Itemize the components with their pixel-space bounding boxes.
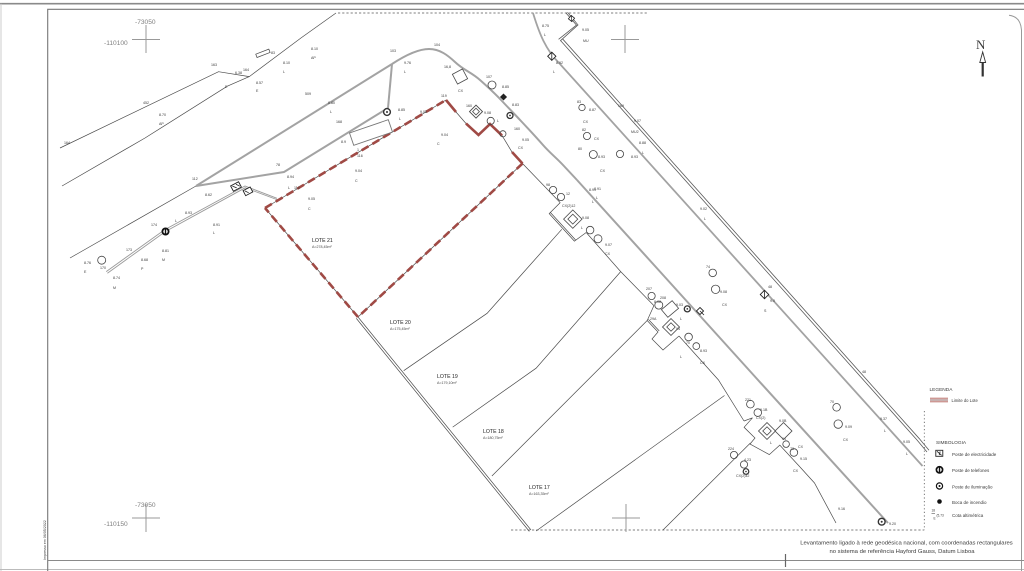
svg-text:M: M xyxy=(113,286,116,290)
svg-text:8.74: 8.74 xyxy=(113,276,120,280)
svg-text:164: 164 xyxy=(243,68,249,72)
svg-text:L: L xyxy=(175,219,177,223)
svg-text:SIMBOLOGIA: SIMBOLOGIA xyxy=(936,440,967,446)
svg-text:9.07: 9.07 xyxy=(605,243,612,247)
svg-text:163: 163 xyxy=(211,63,217,67)
svg-text:E: E xyxy=(934,517,936,521)
svg-text:8.87: 8.87 xyxy=(589,108,596,112)
svg-text:9.04: 9.04 xyxy=(441,133,448,137)
svg-text:-110150: -110150 xyxy=(104,521,128,528)
svg-text:L: L xyxy=(497,119,499,123)
svg-text:CX: CX xyxy=(700,361,706,365)
svg-text:L: L xyxy=(642,151,644,155)
svg-text:104: 104 xyxy=(434,43,440,47)
svg-text:160: 160 xyxy=(514,127,520,131)
svg-text:L: L xyxy=(544,33,546,37)
svg-text:9.07: 9.07 xyxy=(634,119,641,123)
svg-text:9.08: 9.08 xyxy=(582,216,589,220)
svg-text:119: 119 xyxy=(441,94,447,98)
svg-text:8.10: 8.10 xyxy=(311,47,318,51)
svg-text:L: L xyxy=(770,441,772,445)
svg-text:48: 48 xyxy=(768,285,772,289)
svg-text:9.09: 9.09 xyxy=(845,425,852,429)
svg-text:CX: CX xyxy=(600,169,606,173)
svg-text:no sistema de referência Hayfo: no sistema de referência Hayford Gauss, … xyxy=(829,549,975,555)
svg-text:AP: AP xyxy=(311,56,316,60)
svg-text:73: 73 xyxy=(790,447,794,451)
svg-text:94: 94 xyxy=(782,437,786,441)
svg-text:A=163,35m²: A=163,35m² xyxy=(529,492,549,496)
svg-text:Levantamento ligado à rede geo: Levantamento ligado à rede geodésica nac… xyxy=(800,541,1013,547)
svg-text:8.81: 8.81 xyxy=(162,249,169,253)
svg-text:8.62: 8.62 xyxy=(205,193,212,197)
svg-text:9.02: 9.02 xyxy=(700,207,707,211)
svg-text:94: 94 xyxy=(676,327,680,331)
svg-text:164: 164 xyxy=(64,141,70,145)
svg-text:224: 224 xyxy=(728,447,734,451)
svg-text:CX: CX xyxy=(793,469,799,473)
svg-text:174: 174 xyxy=(151,223,157,227)
svg-text:CX: CX xyxy=(583,120,589,124)
svg-text:103: 103 xyxy=(390,49,396,53)
svg-text:83: 83 xyxy=(271,51,275,55)
svg-text:8.93: 8.93 xyxy=(631,155,638,159)
svg-text:107: 107 xyxy=(486,75,492,79)
svg-text:Boca de incendio: Boca de incendio xyxy=(952,500,987,505)
svg-text:8.68: 8.68 xyxy=(141,258,148,262)
svg-text:A=179,10m²: A=179,10m² xyxy=(437,381,457,385)
svg-text:4.23: 4.23 xyxy=(744,458,751,462)
svg-text:9.05: 9.05 xyxy=(420,110,427,114)
svg-text:80: 80 xyxy=(578,147,582,151)
svg-text:160: 160 xyxy=(466,104,472,108)
svg-text:8.92: 8.92 xyxy=(556,61,563,65)
svg-text:9.1B: 9.1B xyxy=(760,408,768,412)
svg-text:CX: CX xyxy=(518,146,524,150)
svg-text:L: L xyxy=(906,452,908,456)
svg-text:-73050: -73050 xyxy=(135,502,156,509)
svg-text:12: 12 xyxy=(566,192,570,196)
svg-text:L: L xyxy=(704,217,706,221)
svg-text:L: L xyxy=(680,355,682,359)
svg-text:L: L xyxy=(404,70,406,74)
svg-text:L: L xyxy=(283,70,285,74)
svg-text:CX(2)42: CX(2)42 xyxy=(736,474,749,478)
svg-text:170: 170 xyxy=(100,266,106,270)
svg-text:A=175,45m²: A=175,45m² xyxy=(390,327,410,331)
svg-text:8.93: 8.93 xyxy=(185,211,192,215)
svg-text:8.94: 8.94 xyxy=(287,175,294,179)
svg-text:70: 70 xyxy=(830,400,834,404)
svg-text:9.0B: 9.0B xyxy=(779,419,787,423)
svg-text:9.76: 9.76 xyxy=(404,61,411,65)
svg-text:74: 74 xyxy=(706,265,710,269)
svg-text:1: 1 xyxy=(357,148,359,152)
svg-text:LOTE 20: LOTE 20 xyxy=(390,320,411,326)
svg-text:MU2: MU2 xyxy=(631,130,639,134)
svg-text:CX: CX xyxy=(798,445,804,449)
svg-text:LOTE 18: LOTE 18 xyxy=(483,429,504,435)
svg-text:8.57: 8.57 xyxy=(256,81,263,85)
svg-text:112: 112 xyxy=(192,177,198,181)
svg-text:M: M xyxy=(162,258,165,262)
svg-text:8.70: 8.70 xyxy=(159,113,166,117)
svg-text:173: 173 xyxy=(126,248,132,252)
svg-text:9.0: 9.0 xyxy=(770,299,775,303)
svg-text:(5,73: (5,73 xyxy=(937,514,944,518)
svg-text:8.9: 8.9 xyxy=(341,140,346,144)
svg-text:9.08: 9.08 xyxy=(720,290,727,294)
svg-text:-73050: -73050 xyxy=(135,19,156,26)
svg-text:8.93: 8.93 xyxy=(598,155,605,159)
svg-text:L: L xyxy=(581,226,583,230)
svg-text:-110100: -110100 xyxy=(104,40,128,47)
svg-text:9.15: 9.15 xyxy=(800,457,807,461)
svg-text:CX: CX xyxy=(843,438,849,442)
svg-text:82: 82 xyxy=(582,128,586,132)
svg-text:CX: CX xyxy=(722,303,728,307)
svg-text:70: 70 xyxy=(686,341,690,345)
svg-text:169: 169 xyxy=(618,104,624,108)
svg-text:9.03: 9.03 xyxy=(676,303,683,307)
svg-text:207: 207 xyxy=(646,287,652,291)
svg-text:16,8: 16,8 xyxy=(444,65,451,69)
svg-text:AP: AP xyxy=(159,122,164,126)
svg-text:9.05: 9.05 xyxy=(522,138,529,142)
svg-text:221: 221 xyxy=(745,398,751,402)
svg-text:8.93: 8.93 xyxy=(700,349,707,353)
svg-text:8.08: 8.08 xyxy=(654,300,661,304)
svg-text:9.05: 9.05 xyxy=(903,440,910,444)
svg-text:A=180,75m²: A=180,75m² xyxy=(483,436,503,440)
svg-text:L: L xyxy=(213,231,215,235)
svg-text:9.08: 9.08 xyxy=(484,111,491,115)
svg-text:A=278,45m²: A=278,45m² xyxy=(312,245,332,249)
svg-text:8.91: 8.91 xyxy=(589,188,596,192)
svg-text:L: L xyxy=(399,117,401,121)
svg-text:8.75: 8.75 xyxy=(542,24,549,28)
svg-text:L: L xyxy=(288,186,290,190)
svg-text:8.80: 8.80 xyxy=(328,101,335,105)
svg-text:168: 168 xyxy=(336,120,342,124)
svg-text:115: 115 xyxy=(294,186,300,190)
svg-text:MU: MU xyxy=(583,39,589,43)
svg-text:6.38: 6.38 xyxy=(235,71,242,75)
svg-text:9.05: 9.05 xyxy=(582,28,589,32)
svg-text:LOTE 19: LOTE 19 xyxy=(437,374,458,380)
svg-text:N: N xyxy=(976,37,986,52)
svg-text:CX: CX xyxy=(605,252,611,256)
svg-text:CX(2)12: CX(2)12 xyxy=(562,204,575,208)
svg-text:48: 48 xyxy=(862,370,866,374)
svg-text:8.85: 8.85 xyxy=(502,85,509,89)
svg-text:Cota altimétrica: Cota altimétrica xyxy=(952,513,984,518)
svg-text:Poste de telefones: Poste de telefones xyxy=(952,468,990,473)
svg-text:L: L xyxy=(596,196,598,200)
svg-text:C: C xyxy=(437,142,440,146)
svg-text:18: 18 xyxy=(932,509,936,513)
svg-text:LEGENDA: LEGENDA xyxy=(930,387,954,393)
svg-text:83: 83 xyxy=(577,100,581,104)
svg-text:9.05: 9.05 xyxy=(308,197,315,201)
svg-text:8.91: 8.91 xyxy=(213,223,220,227)
svg-text:Poste de electricidade: Poste de electricidade xyxy=(952,452,997,457)
svg-text:98: 98 xyxy=(546,183,550,187)
svg-text:LOTE 17: LOTE 17 xyxy=(529,485,550,491)
svg-text:Limite do Lote: Limite do Lote xyxy=(952,398,979,403)
svg-text:LOTE 21: LOTE 21 xyxy=(312,238,333,244)
svg-text:L: L xyxy=(884,429,886,433)
svg-text:116: 116 xyxy=(357,154,363,158)
svg-text:9.20: 9.20 xyxy=(889,522,896,526)
svg-text:8.88: 8.88 xyxy=(639,141,646,145)
svg-text:8.85: 8.85 xyxy=(398,108,405,112)
svg-text:C: C xyxy=(355,179,358,183)
svg-text:9.37: 9.37 xyxy=(880,417,887,421)
svg-text:L: L xyxy=(592,200,594,204)
svg-text:29A: 29A xyxy=(650,317,657,321)
svg-text:CX: CX xyxy=(458,89,464,93)
svg-text:8.76: 8.76 xyxy=(84,261,91,265)
svg-text:Poste de iluminação: Poste de iluminação xyxy=(952,484,993,489)
svg-text:L: L xyxy=(553,70,555,74)
svg-text:L: L xyxy=(330,110,332,114)
svg-text:CX(2): CX(2) xyxy=(756,416,765,420)
svg-text:78: 78 xyxy=(276,163,280,167)
svg-text:8.10: 8.10 xyxy=(283,61,290,65)
svg-text:CX: CX xyxy=(594,137,600,141)
svg-text:C: C xyxy=(308,207,311,211)
svg-text:L: L xyxy=(680,317,682,321)
svg-text:452: 452 xyxy=(143,101,149,105)
svg-text:8.83: 8.83 xyxy=(512,103,519,107)
svg-text:Impresso em 06/05/2022: Impresso em 06/05/2022 xyxy=(43,520,47,560)
svg-text:9.16: 9.16 xyxy=(838,507,845,511)
svg-text:9.04: 9.04 xyxy=(355,169,362,173)
svg-text:509: 509 xyxy=(305,92,311,96)
